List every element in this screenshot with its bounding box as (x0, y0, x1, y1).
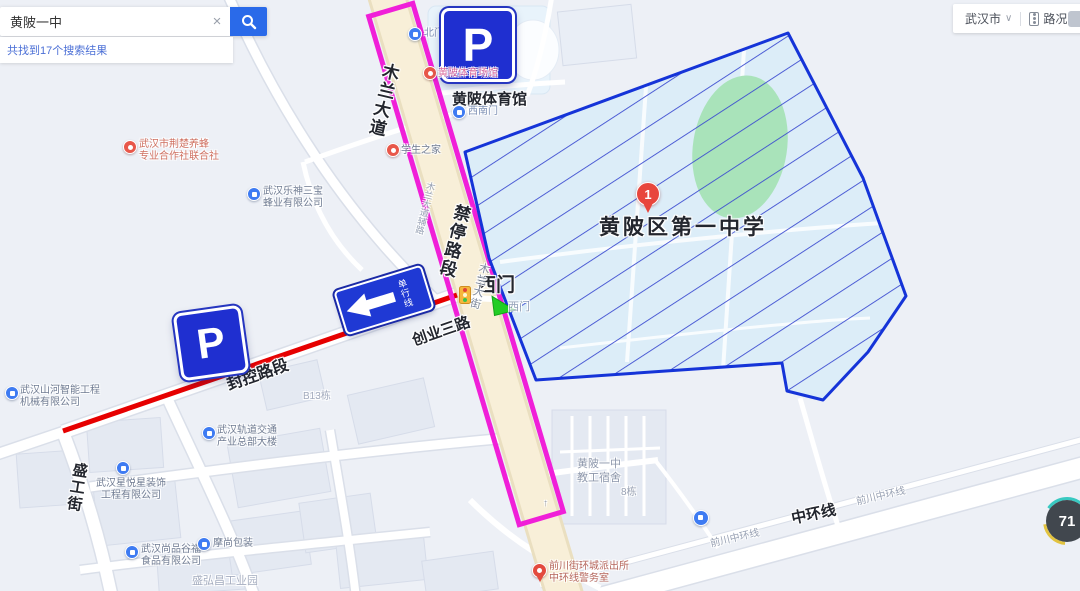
chevron-down-icon: ∨ (1005, 13, 1012, 24)
rail-poi-icon[interactable] (202, 426, 216, 440)
xingyue-poi-icon[interactable] (116, 461, 130, 475)
parking-letter: P (463, 18, 494, 72)
map-app: { "colors": { "brand_blue": "#2a6ae9", "… (0, 0, 1080, 591)
score-value: 71 (1059, 513, 1076, 530)
dorm-label: 黄陂一中 教工宿舍 (577, 457, 621, 485)
north-gate-icon[interactable] (408, 27, 422, 41)
moshang-poi-label[interactable]: 摩尚包装 (213, 538, 253, 550)
traffic-toggle[interactable]: 路况 (1043, 10, 1067, 27)
search-button[interactable] (230, 7, 267, 36)
industrial-park-label: 盛弘昌工业园 (192, 575, 258, 587)
left-arrow-icon (343, 284, 400, 324)
marker-number: 1 (644, 187, 651, 202)
stadium-poi-icon[interactable] (423, 66, 437, 80)
map-toolbar: 武汉市 ∨ 路况 (953, 4, 1080, 33)
moshang-poi-icon[interactable] (197, 537, 211, 551)
school-name-label[interactable]: 黄陂区第一中学 (599, 211, 767, 241)
traffic-light-icon (459, 286, 471, 304)
toolbar-divider (1020, 12, 1021, 26)
search-bar[interactable]: 黄陂一中 × (0, 7, 267, 36)
xingyue-poi-label[interactable]: 武汉星悦星装饰 工程有限公司 (96, 478, 166, 502)
bee-coop-poi-icon[interactable] (123, 140, 137, 154)
parking-sign-west[interactable]: P (173, 305, 250, 382)
toolbar-extra-icon[interactable] (1068, 11, 1080, 27)
southwest-gate-label: 西南门 (468, 106, 498, 118)
west-gate-small-label: 西门 (508, 301, 530, 313)
road-direction-arrow: ↑ (543, 498, 548, 510)
stadium-poi-label[interactable]: 黄陂体育场馆 (438, 68, 498, 80)
bldg8-label: 8栋 (621, 487, 637, 499)
results-count-text: 共找到17个搜索结果 (0, 42, 107, 58)
shanhe-poi-icon[interactable] (5, 386, 19, 400)
leshen-poi-label[interactable]: 武汉乐神三宝 蜂业有限公司 (263, 186, 323, 210)
traffic-toggle-icon (1029, 12, 1039, 26)
city-selector[interactable]: 武汉市 (965, 10, 1001, 27)
search-results-summary[interactable]: 共找到17个搜索结果 (0, 37, 233, 63)
southwest-gate-icon[interactable] (452, 105, 466, 119)
leshen-poi-icon[interactable] (247, 187, 261, 201)
bldg-b13-label: B13栋 (303, 391, 331, 403)
police-poi-label[interactable]: 前川街环城派出所 中环线警务室 (549, 561, 629, 585)
bus-station-icon[interactable] (693, 510, 709, 526)
score-badge[interactable]: 71 (1042, 496, 1080, 546)
clear-search-icon[interactable]: × (204, 13, 230, 30)
shangpin-poi-label[interactable]: 武汉尚品谷福 食品有限公司 (141, 544, 201, 568)
search-input[interactable]: 黄陂一中 (0, 12, 204, 31)
shangpin-poi-icon[interactable] (125, 545, 139, 559)
rail-poi-label[interactable]: 武汉轨道交通 产业总部大楼 (217, 425, 277, 449)
bee-coop-poi-label[interactable]: 武汉市荆楚养蜂 专业合作社联合社 (139, 139, 219, 163)
police-poi-icon[interactable] (532, 563, 547, 578)
shanhe-poi-label[interactable]: 武汉山河智能工程 机械有限公司 (20, 385, 100, 409)
search-icon (241, 14, 257, 30)
parking-letter: P (194, 317, 228, 368)
student-home-poi-label[interactable]: 学生之家 (401, 145, 441, 157)
map-canvas[interactable] (0, 0, 1080, 591)
search-result-marker-1[interactable]: 1 (636, 182, 660, 206)
student-home-poi-icon[interactable] (386, 143, 400, 157)
